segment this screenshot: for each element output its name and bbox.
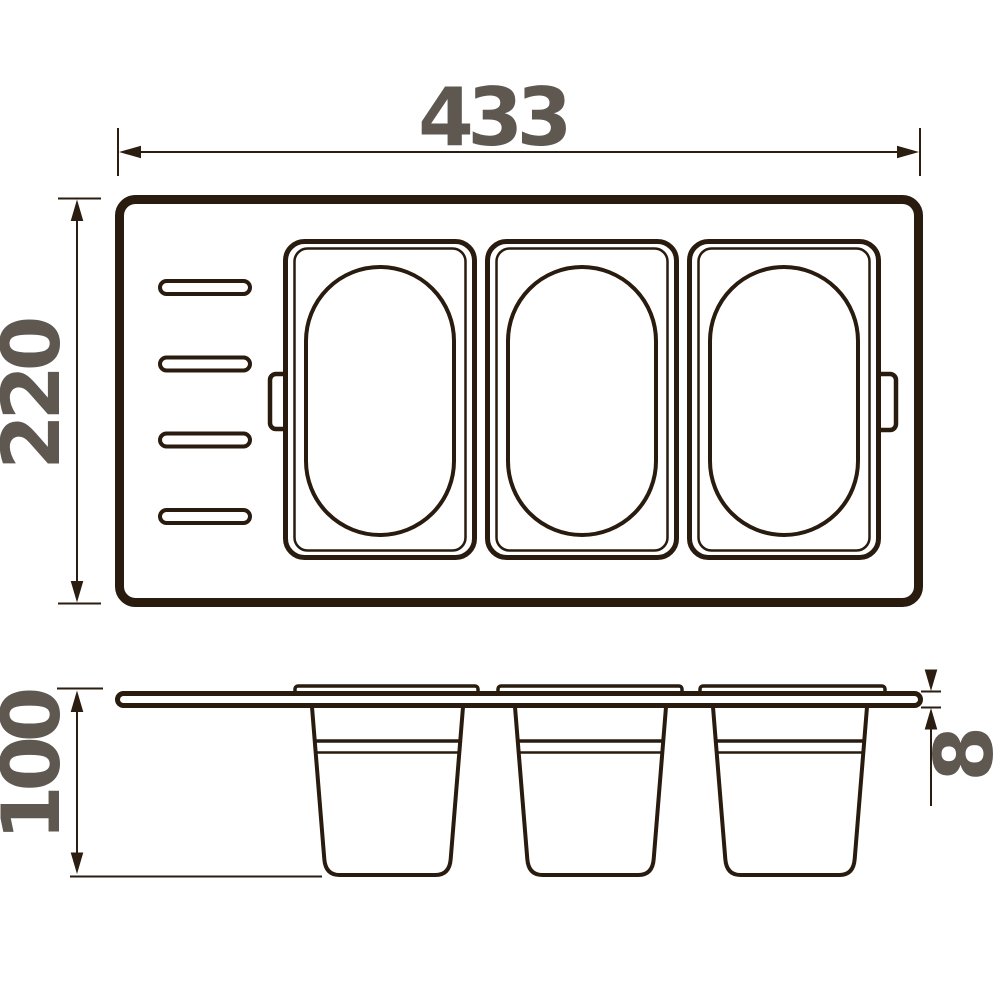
- height-arrowhead-top: [71, 200, 84, 222]
- side-view: [118, 686, 921, 875]
- container-profile-3: [713, 707, 867, 875]
- depth-arrowhead-bottom: [71, 853, 84, 875]
- drain-slot-1: [160, 281, 250, 294]
- thickness-dimension-label: 8: [918, 731, 1000, 782]
- top-view: [120, 200, 919, 603]
- compartment-1-outer: [286, 242, 475, 558]
- compartment-2: [488, 242, 677, 558]
- depth-dimension-label: 100: [0, 690, 78, 841]
- compartment-2-outer: [488, 242, 677, 558]
- drain-slot-2: [160, 358, 250, 371]
- container-profile-1: [312, 707, 463, 875]
- dimension-width: 433: [118, 71, 920, 176]
- container-3-body: [713, 707, 867, 875]
- dimension-thickness: 8: [918, 670, 1000, 807]
- dimension-depth: 100: [0, 689, 322, 877]
- drain-slot-3: [160, 434, 250, 447]
- width-arrowhead-right: [897, 146, 919, 159]
- thickness-arrowhead-bottom: [925, 708, 938, 730]
- drawer-organizer-drawing: 433 220 100 8: [0, 0, 1000, 998]
- compartment-1: [286, 242, 475, 558]
- container-1-body: [312, 707, 463, 875]
- container-2-body: [515, 707, 666, 875]
- drain-slot-4: [160, 510, 250, 523]
- thickness-arrowhead-top: [925, 670, 938, 692]
- dimension-height: 220: [0, 199, 101, 604]
- technical-drawing-canvas: 433 220 100 8: [0, 0, 1000, 998]
- height-dimension-label: 220: [0, 319, 78, 470]
- height-arrowhead-bottom: [71, 581, 84, 603]
- compartment-3-outer: [690, 242, 879, 558]
- width-dimension-label: 433: [418, 71, 567, 164]
- cover-plate: [118, 694, 921, 706]
- compartment-3: [690, 242, 879, 558]
- width-arrowhead-left: [119, 146, 141, 159]
- container-profile-2: [515, 707, 666, 875]
